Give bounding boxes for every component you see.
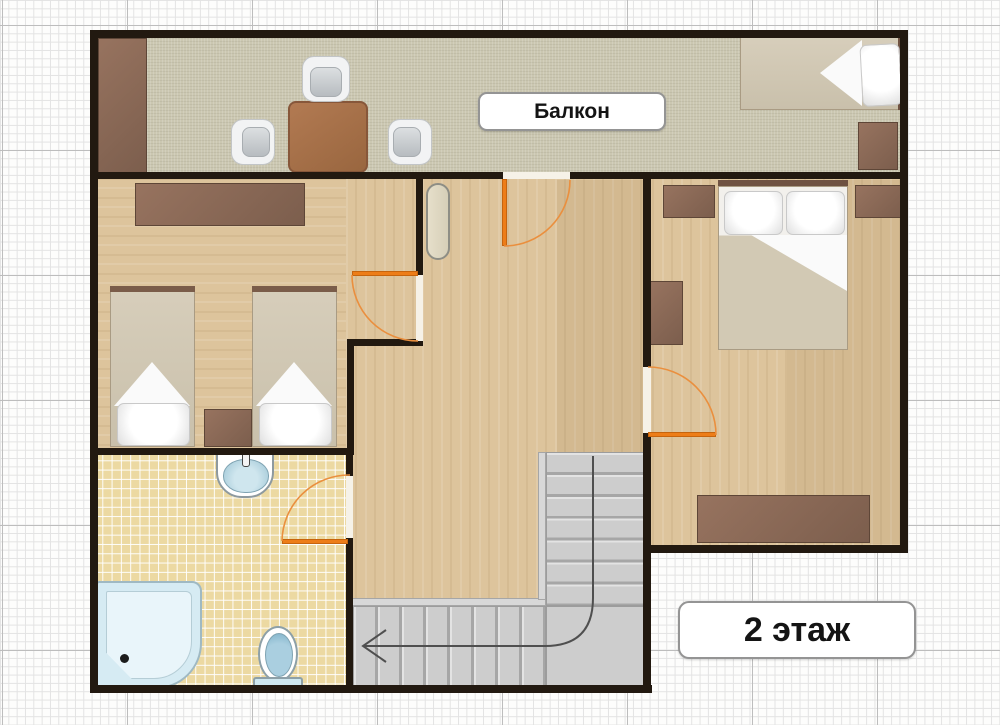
left-room-nightstand (204, 409, 252, 447)
bathroom-top-wall (93, 448, 354, 455)
bedroom-nightstand-right (855, 185, 903, 218)
outer-wall-right (900, 30, 908, 553)
single-bed-right-headboard (252, 286, 337, 292)
double-bed-pillow-left (724, 191, 783, 235)
left-room-shelf (135, 183, 305, 226)
balcony-nightstand (858, 122, 898, 170)
bedroom-door-leaf (648, 432, 716, 437)
single-bed-left-headboard (110, 286, 195, 292)
bedroom-sideboard (697, 495, 870, 543)
graph-paper-background: { "labels": { "balcony": "Балкон", "floo… (0, 0, 1000, 725)
corner-shower (96, 581, 202, 689)
bedroom-dresser (650, 281, 683, 345)
shower-drain-icon (120, 654, 129, 663)
staircase-upper-flight (546, 452, 645, 606)
bedroom-door-opening (643, 367, 651, 433)
bathroom-door-leaf (282, 539, 348, 544)
balcony-label: Балкон (478, 92, 666, 131)
outer-wall-left (90, 30, 98, 693)
balcony-wardrobe (98, 38, 147, 174)
double-bed-duvet-fold (751, 235, 847, 291)
chair-icon (231, 119, 275, 165)
staircase-landing (546, 606, 645, 686)
toilet-bowl (265, 633, 293, 677)
bedroom-nightstand-left (663, 185, 715, 218)
left-room-corner-wall-h (350, 339, 423, 346)
left-room-door-leaf (352, 271, 418, 276)
sink (216, 451, 274, 498)
single-bed-left-blanket-fold (114, 362, 190, 406)
balcony-bed-blanket-fold (820, 40, 862, 106)
chair-icon (302, 56, 350, 102)
balcony-door-opening (503, 172, 570, 179)
radiator (426, 183, 450, 260)
stair-guard-wall-vertical (538, 452, 546, 600)
single-bed-left-pillow (117, 403, 190, 446)
stair-guard-wall-horizontal (349, 598, 546, 606)
single-bed-right-pillow (259, 403, 332, 446)
left-room-corner-wall-v (347, 339, 354, 455)
single-bed-right-blanket-fold (256, 362, 332, 406)
double-bed-pillow-right (786, 191, 845, 235)
bathroom-door-opening (346, 476, 353, 538)
left-room-right-wall (416, 176, 423, 277)
chair-icon (388, 119, 432, 165)
floor-badge: 2 этаж (678, 601, 916, 659)
balcony-door-leaf (502, 179, 507, 246)
shower-tray (106, 591, 192, 679)
balcony-wall (94, 172, 904, 179)
balcony-bed-pillow (859, 43, 902, 107)
outer-wall-bottom (90, 685, 652, 693)
left-room-door-opening (416, 275, 423, 341)
floor-badge-text: 2 этаж (744, 611, 850, 650)
balcony-label-text: Балкон (534, 100, 610, 124)
staircase-lower-flight (353, 606, 546, 686)
dining-table (288, 101, 368, 173)
bedroom-bottom-wall (645, 545, 908, 553)
outer-wall-top (90, 30, 908, 38)
toilet (258, 626, 298, 682)
